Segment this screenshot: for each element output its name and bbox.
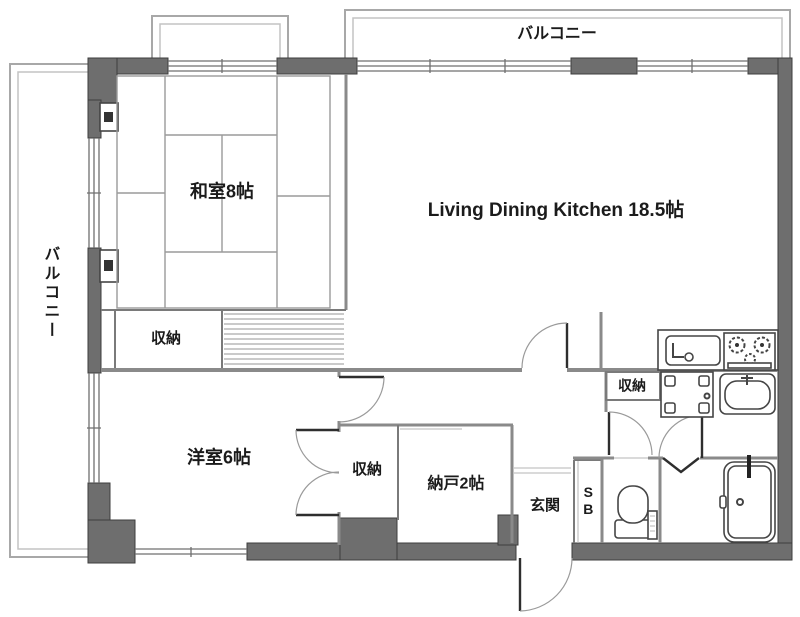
kitchen-sink-icon [666,336,720,365]
entrance-label: 玄関 [530,498,560,514]
ldk-door [522,323,567,368]
closet-double-doors [296,430,339,515]
vanity-basin-icon [720,374,775,414]
balcony-label-top: バルコニー [517,27,597,44]
balcony-label-left: バルコニー [41,246,58,341]
folding-door-icon [663,458,699,472]
bathtub-icon [720,455,775,542]
closet-label-washitsu: 収納 [151,331,181,347]
room-label-nando: 納戸2帖 [428,477,485,494]
gas-stove-icon [724,333,775,370]
closet-label-washroom: 収納 [618,379,646,394]
room-label-washitsu: 和室8帖 [190,183,254,202]
washing-machine-pan-icon [661,372,713,417]
floor-stripes [224,314,344,364]
interior-walls [101,74,778,545]
room-label-ldk: Living Dining Kitchen 18.5帖 [428,201,685,221]
toilet-icon [615,486,657,539]
youshitsu-door [339,377,384,422]
entrance-door [520,558,572,611]
room-label-youshitsu: 洋室6帖 [187,449,251,468]
floorplan-linework [0,0,800,617]
washroom-door [609,412,702,458]
closet-label-youshitsu: 収納 [352,462,382,478]
shutter-box-icon [100,250,118,282]
floor-plan: バルコニー バルコニー 和室8帖 Living Dining Kitchen 1… [0,0,800,617]
bay-window-outline [152,16,288,58]
shutter-box-icon [100,103,118,131]
shoebox-label: SB [581,484,596,518]
